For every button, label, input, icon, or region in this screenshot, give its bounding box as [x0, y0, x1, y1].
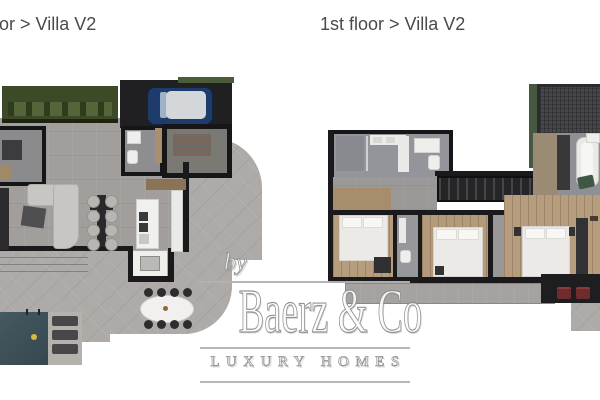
shower-area — [336, 136, 364, 171]
ensuite-sink — [399, 218, 406, 243]
red-lounger — [576, 287, 590, 299]
shower-glass — [366, 136, 368, 171]
hallway-wood — [333, 188, 391, 210]
wardrobe — [576, 218, 588, 276]
bathtub-small — [414, 138, 440, 153]
carport-roof — [537, 84, 600, 140]
pillow — [363, 217, 383, 228]
pillow — [546, 228, 566, 239]
wardrobe — [557, 135, 570, 190]
washbasin — [386, 137, 395, 143]
bathroom-counter — [398, 136, 409, 172]
listing-floorplan-image: or > Villa V2 1st floor > Villa V2 — [0, 0, 600, 400]
pillow — [436, 229, 457, 240]
closet-corridor — [493, 215, 504, 277]
nightstand — [514, 227, 521, 236]
brand-watermark: by Baerz & Co LUXURY HOMES — [198, 250, 412, 390]
pillow — [458, 229, 479, 240]
watermark-rule-bottom — [200, 381, 410, 383]
nightstand — [569, 227, 575, 236]
brand-tagline-text: LUXURY HOMES — [198, 354, 412, 371]
pillow — [525, 228, 545, 239]
pillow — [342, 217, 362, 228]
washbasin — [373, 137, 382, 143]
red-lounger — [557, 287, 571, 299]
watermark-by-text: by — [224, 250, 247, 277]
toilet — [586, 133, 600, 143]
brand-logo-text: Baerz & Co — [239, 282, 372, 342]
watermark-rule-middle — [200, 347, 410, 349]
bedroom2-stool — [435, 266, 444, 275]
toilet — [428, 155, 440, 170]
desk-item — [590, 216, 598, 221]
balcony-concrete — [571, 303, 600, 331]
